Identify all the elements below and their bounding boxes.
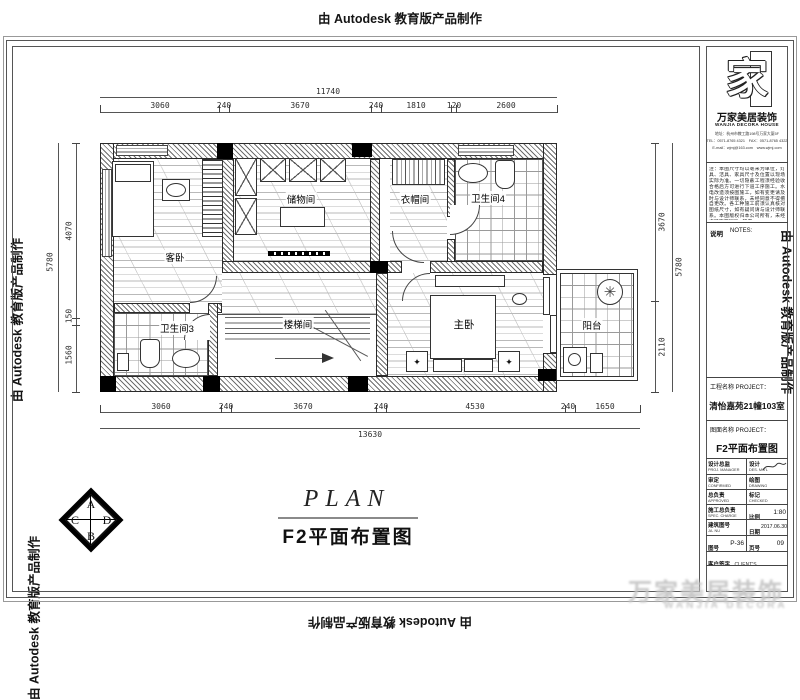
company-name-en: WANJIA DECORA HOUSE <box>715 122 779 127</box>
wardrobe-cabinet <box>289 158 317 182</box>
room-label-bathroom4: 卫生间4 <box>470 191 506 205</box>
window-top-guest <box>116 145 168 156</box>
cell-drawing: 绘图 DRAWING <box>747 475 788 490</box>
company-phone: TEL：0571-8765 4321 FAX：0571-8765 4322 <box>707 139 788 144</box>
notes-label-cn: 说明 <box>710 228 723 238</box>
stair-arrow-icon <box>322 353 334 363</box>
nightstand: ✦ <box>498 351 520 372</box>
general-notes-text: 注：本图尺寸均以毫米为单位，灯具、洁具、家具尺寸及位置以现场实际为准。一切隐蔽工… <box>709 167 785 220</box>
company-address: 地址：杭州市教工路198号万家大厦5F <box>715 132 779 137</box>
notes-section: 说明 NOTES: <box>706 222 788 377</box>
cloakroom-shelf <box>392 159 445 185</box>
plan-title-underline <box>278 517 418 519</box>
cabd-letter-d: D <box>103 513 112 528</box>
dim-right-2: 2110 <box>658 337 667 356</box>
dim-top-4: 240 <box>369 101 383 110</box>
wardrobe-cabinet <box>320 158 346 182</box>
wall-right-upper <box>543 143 557 275</box>
column <box>217 143 233 159</box>
dim-top-6: 120 <box>447 101 461 110</box>
plant: ✳ <box>597 279 623 305</box>
dim-left-3: 1560 <box>65 345 74 364</box>
label-approved: 总负责 <box>708 491 744 499</box>
balcony-cabinet <box>590 353 603 373</box>
cell-dwg-no: 图号 P-36 DWG No. <box>706 536 747 552</box>
ornament-icon: ✦ <box>413 357 421 367</box>
cabd-letter-b: B <box>87 529 95 544</box>
dim-top-1: 3060 <box>150 101 169 110</box>
label-site-charge-en: SPEC. CHARGE <box>708 514 744 518</box>
label-client-signature-en: CLIENT'S <box>734 562 756 566</box>
sliding-track <box>268 251 330 256</box>
drawing-name-section: 图面名称 PROJECT： F2平面布置图 <box>706 420 788 458</box>
dim-ticks-left <box>72 143 80 144</box>
wall-storage-cloak <box>370 159 380 263</box>
cell-designer: 设计 DES. MG'L <box>747 459 788 475</box>
washing-machine-drum <box>568 353 581 366</box>
room-label-guest-bedroom: 客卧 <box>164 250 185 264</box>
attic-ladder <box>202 159 223 237</box>
drawing-name-label: 图面名称 PROJECT： <box>710 425 770 434</box>
wall-guest-storage <box>222 159 234 263</box>
room-label-stairwell: 楼梯间 <box>283 317 314 331</box>
label-arch-no-en: JA. NU <box>708 529 744 533</box>
master-bed-pillow <box>464 359 493 372</box>
room-label-cloakroom: 衣帽间 <box>400 192 431 206</box>
cell-arch-no: 建筑图号 JA. NU <box>706 520 747 536</box>
bathroom3-fixture <box>117 353 129 371</box>
titleblock: 家 万家美居装饰 WANJIA DECORA HOUSE 地址：杭州市教工路19… <box>706 46 788 592</box>
page-no-value: 09 <box>777 540 784 547</box>
dim-bot-7: 1650 <box>595 402 614 411</box>
cell-approved: 总负责 APPROVED <box>706 490 747 505</box>
label-client-signature: 客户签字 <box>708 562 730 566</box>
autodesk-stamp-top: 由 Autodesk 教育版产品制作 <box>318 8 482 27</box>
dim-top-total: 11740 <box>316 87 340 96</box>
cabd-logo: A B C D <box>60 489 122 551</box>
room-label-master-bedroom: 主卧 <box>453 317 476 332</box>
cell-site-charge: 施工总负责 SPEC. CHARGE <box>706 505 747 520</box>
guest-bed-pillow <box>115 164 151 182</box>
label-approved-en: APPROVED <box>708 499 744 503</box>
label-confirmed: 审定 <box>708 476 744 484</box>
column <box>348 376 368 392</box>
wardrobe-cabinet <box>235 158 257 196</box>
autodesk-stamp-bottom: 由 Autodesk 教育版产品制作 <box>308 614 472 633</box>
dim-ticks-right <box>651 143 659 144</box>
label-checked-en: CHECKED <box>749 499 786 503</box>
dim-line-right-chain <box>655 143 656 392</box>
plan-title-cn: F2平面布置图 <box>282 522 413 549</box>
dim-bot-2: 240 <box>219 402 233 411</box>
wall-stair-master <box>376 273 388 376</box>
window-left <box>102 169 112 257</box>
room-label-bathroom3: 卫生间3 <box>159 321 195 335</box>
label-drawing: 绘图 <box>749 476 786 484</box>
project-section: 工程名称 PROJECT： 清怡嘉苑21幢103室 <box>706 377 788 420</box>
wall-guest-low-a <box>114 303 190 313</box>
dim-line-left-chain <box>76 143 77 392</box>
room-label-balcony: 阳台 <box>581 318 602 332</box>
storage-table <box>280 207 325 227</box>
label-dwg-no: 图号 <box>708 544 719 552</box>
master-dresser <box>435 275 505 287</box>
cad-sheet: { "stamp_text": "由 Autodesk 教育版产品制作", "p… <box>0 0 800 640</box>
column <box>370 261 388 273</box>
wall-cloak-bath4-b <box>447 239 455 263</box>
dim-bot-6: 240 <box>561 402 575 411</box>
dim-line-bottom-chain <box>100 412 640 413</box>
master-bed-pillow <box>433 359 462 372</box>
dim-line-top-chain <box>100 112 557 113</box>
cabd-letter-a: A <box>87 497 96 512</box>
company-logo-glyph: 家 <box>726 46 768 107</box>
drawing-name-value: F2平面布置图 <box>716 440 778 455</box>
column <box>100 376 116 392</box>
date-value: 2017.06.30 <box>761 524 787 530</box>
room-label-storage: 储物间 <box>286 192 317 206</box>
label-drawing-en: DRAWING <box>749 484 786 488</box>
dim-left-1: 4070 <box>65 221 74 240</box>
dim-line-left-total <box>58 143 59 392</box>
dim-top-7: 2600 <box>496 101 515 110</box>
dim-bot-3: 3670 <box>293 402 312 411</box>
dim-line-right-total <box>672 143 673 392</box>
column <box>352 143 372 157</box>
cell-checked: 标记 CHECKED <box>747 490 788 505</box>
project-label: 工程名称 PROJECT： <box>710 382 770 391</box>
stair-arrow-tail <box>275 358 323 359</box>
plant-icon: ✳ <box>604 284 617 301</box>
dim-line-bottom-total <box>100 428 640 429</box>
bathroom4-toilet <box>495 160 515 189</box>
dim-bot-1: 3060 <box>151 402 170 411</box>
plan-title-en: PLAN <box>304 486 391 513</box>
bathroom4-sink <box>458 163 488 183</box>
label-site-charge: 施工总负责 <box>708 506 744 514</box>
dim-right-total: 5780 <box>675 257 684 276</box>
bathroom3-toilet <box>140 339 160 368</box>
dim-line-top-total <box>100 97 557 98</box>
label-design-director-en: PROJ. MANAGER <box>708 468 744 472</box>
cell-client-signature: 客户签字 CLIENT'S <box>706 552 788 566</box>
cell-confirmed: 审定 CONFIRMED <box>706 475 747 490</box>
signature-table: 设计总监 PROJ. MANAGER 设计 DES. MG'L 审定 CONFI… <box>706 458 788 568</box>
dim-bot-4: 240 <box>374 402 388 411</box>
dim-left-total: 5780 <box>46 252 55 271</box>
wardrobe-cabinet <box>260 158 286 182</box>
cell-design-director: 设计总监 PROJ. MANAGER <box>706 459 747 475</box>
company-watermark-en: WANJIA DECORA <box>664 600 788 611</box>
cell-scale: 比例 1:80 SCALE <box>747 505 788 520</box>
company-section: 家 万家美居装饰 WANJIA DECORA HOUSE 地址：杭州市教工路19… <box>706 46 788 163</box>
ornament-icon: ✦ <box>505 357 513 367</box>
floor-plan: ✦ ✦ ✳ <box>100 143 640 393</box>
column <box>203 376 220 392</box>
nightstand: ✦ <box>406 351 428 372</box>
window-top-bath4 <box>458 145 514 156</box>
dim-left-2: 150 <box>65 309 74 323</box>
wardrobe-cabinet <box>235 198 257 235</box>
label-design-director: 设计总监 <box>708 460 744 468</box>
notes-label-en: NOTES: <box>730 228 752 234</box>
dim-ticks-top <box>100 105 101 113</box>
column <box>538 369 556 381</box>
label-page-no: 页号 <box>749 544 760 552</box>
label-date: 日期 <box>749 528 760 536</box>
designer-signature <box>761 461 787 472</box>
dim-bot-5: 4530 <box>465 402 484 411</box>
label-checked: 标记 <box>749 491 786 499</box>
cabd-letter-c: C <box>71 513 79 528</box>
dim-bottom-total: 13630 <box>358 430 382 439</box>
master-stool <box>512 293 527 305</box>
label-scale: 比例 <box>749 513 760 520</box>
dim-top-5: 1810 <box>406 101 425 110</box>
dim-ticks-bottom <box>100 405 101 413</box>
dim-right-1: 3670 <box>658 212 667 231</box>
corridor-floor <box>222 273 376 314</box>
cell-date: 日期 2017.06.30 DATE <box>747 520 788 536</box>
label-confirmed-en: CONFIRMED <box>708 484 744 488</box>
wall-mid-b <box>430 261 543 273</box>
guest-chair <box>166 183 186 197</box>
project-value: 清怡嘉苑21幢103室 <box>709 400 784 412</box>
label-arch-no: 建筑图号 <box>708 521 744 529</box>
dwg-no-value: P-36 <box>730 540 744 547</box>
scale-value: 1:80 <box>773 509 786 516</box>
dim-top-3: 3670 <box>290 101 309 110</box>
cell-page-no: 页号 09 NU <box>747 536 788 552</box>
wall-bottom <box>100 376 557 392</box>
dim-top-2: 240 <box>217 101 231 110</box>
bathroom3-sink <box>172 349 200 368</box>
balcony-door-panel <box>543 277 550 315</box>
company-email: E-mail：wjmj@163.com www.wjmj.com <box>712 146 781 151</box>
